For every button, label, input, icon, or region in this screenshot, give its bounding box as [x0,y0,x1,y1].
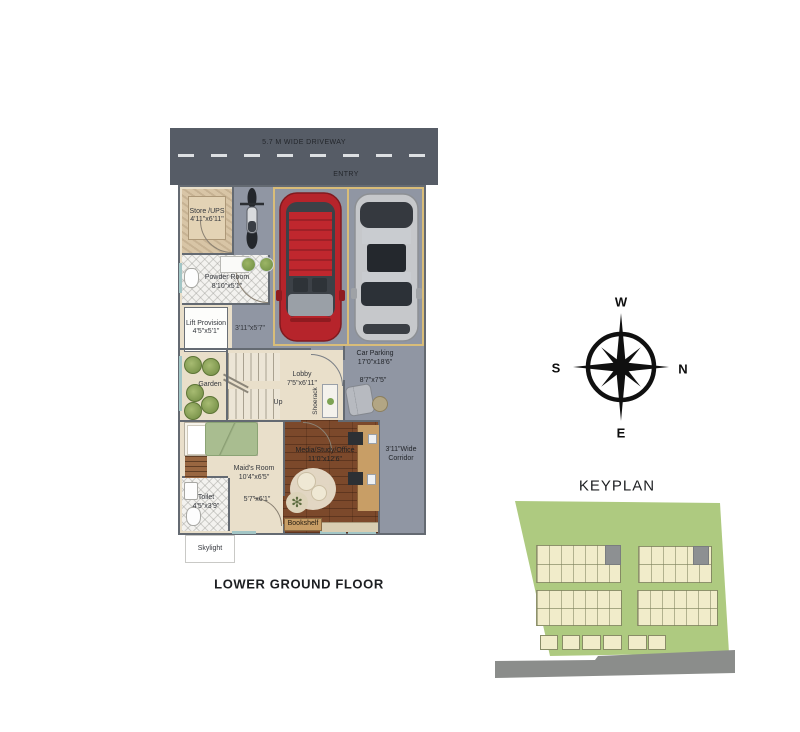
brochure-page: 5.7 M WIDE DRIVEWAY ENTRY [0,0,800,732]
label-maids: Maid's Room [234,465,275,473]
plot-house [603,635,622,650]
car-silver-icon [351,192,422,344]
window [232,531,256,534]
label-stair-passage-dim: 3'11"x5'7" [235,325,265,333]
monitor [348,432,363,445]
floor-title: LOWER GROUND FLOOR [214,577,384,592]
driveway-center-line [178,154,430,157]
label-parking-dim: 17'0"x18'6" [358,359,393,367]
label-lift-dim: 4'5"x5'1" [193,328,220,336]
label-toilet: Toilet [198,494,214,502]
label-powder-dim: 8'10"x5'1" [212,283,243,291]
compass-label-north: N [678,362,687,377]
stairs-upper-flight [228,353,280,381]
window [179,356,182,411]
plot-house [562,635,580,650]
plant-icon [201,396,219,414]
plot-highlighted [693,546,709,565]
label-maids-passage-dim: 5'7"x6'1" [244,496,271,504]
keyplan-title: KEYPLAN [579,478,655,495]
window [179,263,182,293]
armchair [345,383,376,417]
driveway-label: 5.7 M WIDE DRIVEWAY [262,139,346,147]
label-skylight: Skylight [198,545,223,553]
plot-row [536,590,622,626]
car-red-icon [276,190,345,344]
plot-house [582,635,601,650]
keyplan: KEYPLAN [490,468,735,682]
label-up: Up [274,399,283,407]
shoerack-plant-icon [327,398,334,405]
label-maids-dim: 10'4"x6'5" [239,474,270,482]
stairs-lower-flight [228,389,280,419]
bed-pillow [187,425,207,455]
bed-duvet [205,422,258,456]
wall [283,422,285,496]
plant-icon [241,257,256,272]
label-powder: Powder Room [205,274,249,282]
desk-item [367,474,376,485]
plant-icon [259,257,274,272]
plot-highlighted [605,545,621,565]
plot-house [540,635,558,650]
label-sitout-dim: 8'7"x7'5" [360,377,387,385]
label-parking: Car Parking [357,350,394,358]
label-bookshelf: Bookshelf [288,520,319,528]
corridor-floor [378,420,424,533]
label-toilet-dim: 4'5"x3'9" [193,503,220,511]
compass-label-west: W [615,295,627,310]
toilet-sink [184,482,198,500]
monitor [348,472,363,485]
compass-star-icon [545,293,697,443]
compass-rose: W S N E [545,293,697,443]
dresser [185,456,207,478]
wall [343,346,345,360]
bottom-ledge [322,522,378,532]
label-store-dim: 4'11"x6'11" [190,216,223,224]
desk-item [368,434,377,444]
ottoman [372,396,388,412]
wall [343,380,345,422]
label-lobby: Lobby [292,371,311,379]
powder-wc [184,268,199,288]
plant-icon [184,356,202,374]
plot-house [628,635,647,650]
compass-label-south: S [552,361,561,376]
plot-row [637,590,718,626]
plant-icon [202,358,220,376]
wall [182,253,234,255]
wall [182,303,270,305]
compass-label-east: E [617,426,626,441]
floor-plan: 5.7 M WIDE DRIVEWAY ENTRY [170,128,438,606]
label-shoerack: Shoerack [312,387,320,414]
motorcycle-icon [234,187,270,251]
label-media: Media/Study/Office [295,447,354,455]
plant-icon [184,402,202,420]
pouf [311,485,327,501]
label-garden: Garden [198,381,221,389]
wall [228,478,230,531]
driveway: 5.7 M WIDE DRIVEWAY ENTRY [170,128,438,185]
plot-house [648,635,666,650]
label-media-dim: 11'0"x12'6" [308,456,342,464]
parking-stall-divider [347,187,349,346]
label-corridor-2: Corridor [388,455,413,463]
wall [180,348,311,350]
wall [232,187,234,255]
plant-icon: ✻ [286,492,308,513]
label-corridor-1: 3'11"Wide [386,446,417,454]
entry-label: ENTRY [333,171,359,179]
wall [226,350,228,420]
